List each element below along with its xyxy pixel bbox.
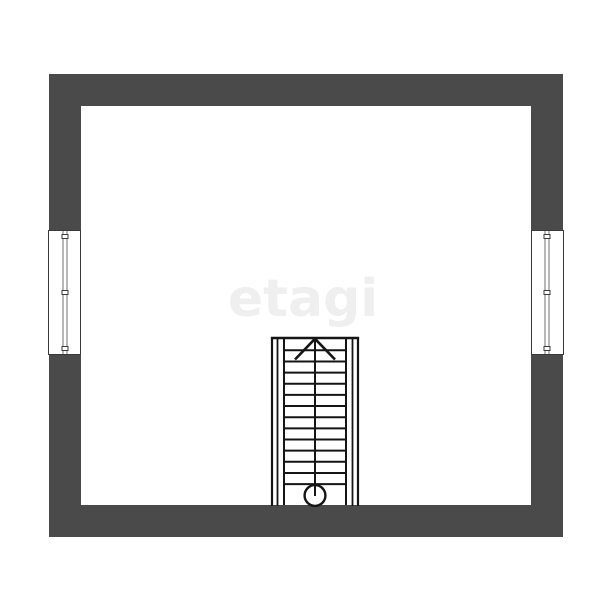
right-window-mullion-mid — [544, 290, 551, 295]
left-window — [48, 230, 81, 355]
wall-east-lower — [531, 354, 563, 537]
wall-east-upper — [531, 74, 563, 231]
right-window-mullion-bottom — [544, 346, 551, 351]
left-window-mullion-bottom — [61, 346, 68, 351]
right-window-mullion-top — [544, 234, 551, 239]
left-window-mullion-mid — [61, 290, 68, 295]
left-window-mullion-top — [61, 234, 68, 239]
right-window — [531, 230, 564, 355]
wall-west-lower — [49, 354, 81, 537]
staircase — [264, 331, 366, 513]
wall-north — [49, 74, 563, 106]
wall-west-upper — [49, 74, 81, 231]
floor-plan: etagi — [0, 0, 613, 613]
